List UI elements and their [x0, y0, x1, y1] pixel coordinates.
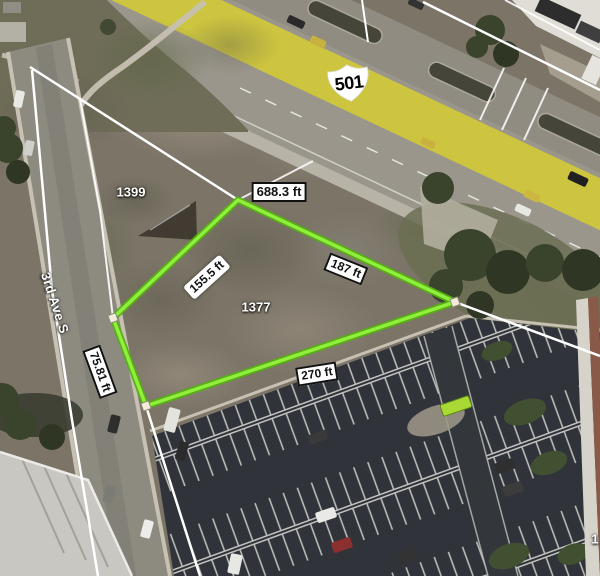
measurement-label-boundary: 688.3 ft [252, 182, 307, 202]
map-stage[interactable]: 688.3 ft 155.5 ft 187 ft 270 ft 75.81 ft… [0, 0, 600, 576]
parcel-number-1377: 1377 [242, 300, 271, 315]
parcel-number-partial: 1 [591, 532, 598, 547]
parcel-number-1399: 1399 [117, 185, 146, 200]
aerial-imagery [0, 0, 600, 576]
route-shield-number: 501 [324, 63, 374, 102]
building-top-left [0, 22, 26, 42]
route-shield-501: 501 [324, 59, 375, 106]
